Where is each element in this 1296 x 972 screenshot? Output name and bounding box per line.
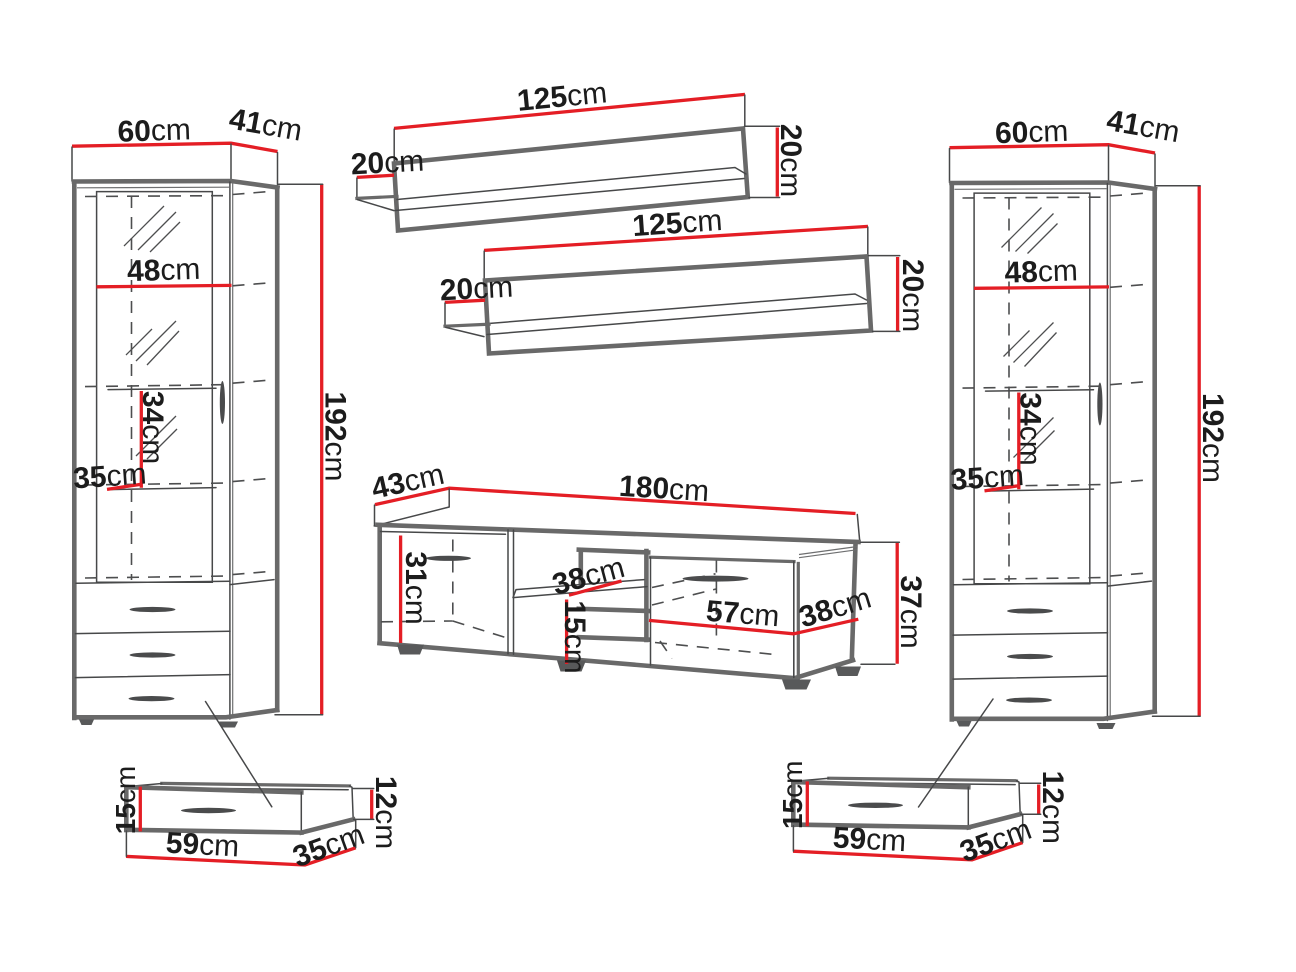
svg-text:20cm: 20cm	[350, 145, 425, 182]
svg-text:57cm: 57cm	[705, 595, 781, 634]
svg-text:20cm: 20cm	[774, 124, 807, 197]
svg-text:125cm: 125cm	[631, 204, 723, 243]
svg-text:15cm: 15cm	[558, 600, 591, 673]
svg-text:20cm: 20cm	[896, 259, 929, 332]
svg-text:31cm: 31cm	[399, 551, 432, 624]
svg-text:180cm: 180cm	[618, 470, 710, 508]
svg-text:20cm: 20cm	[439, 271, 514, 308]
svg-text:37cm: 37cm	[894, 575, 927, 648]
